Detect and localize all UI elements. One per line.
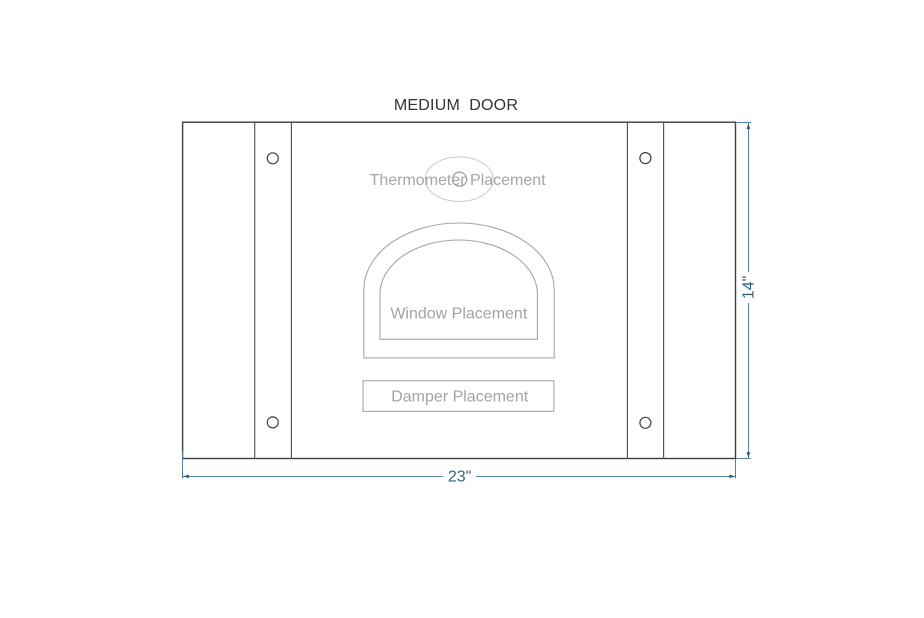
svg-text:Damper Placement: Damper Placement [391,388,529,405]
svg-text:MEDIUM DOOR: MEDIUM DOOR [394,97,518,114]
svg-text:Thermometer Placement: Thermometer Placement [370,172,547,189]
svg-text:Window Placement: Window Placement [390,305,528,322]
svg-text:14": 14" [740,276,757,299]
svg-text:23": 23" [448,468,471,485]
